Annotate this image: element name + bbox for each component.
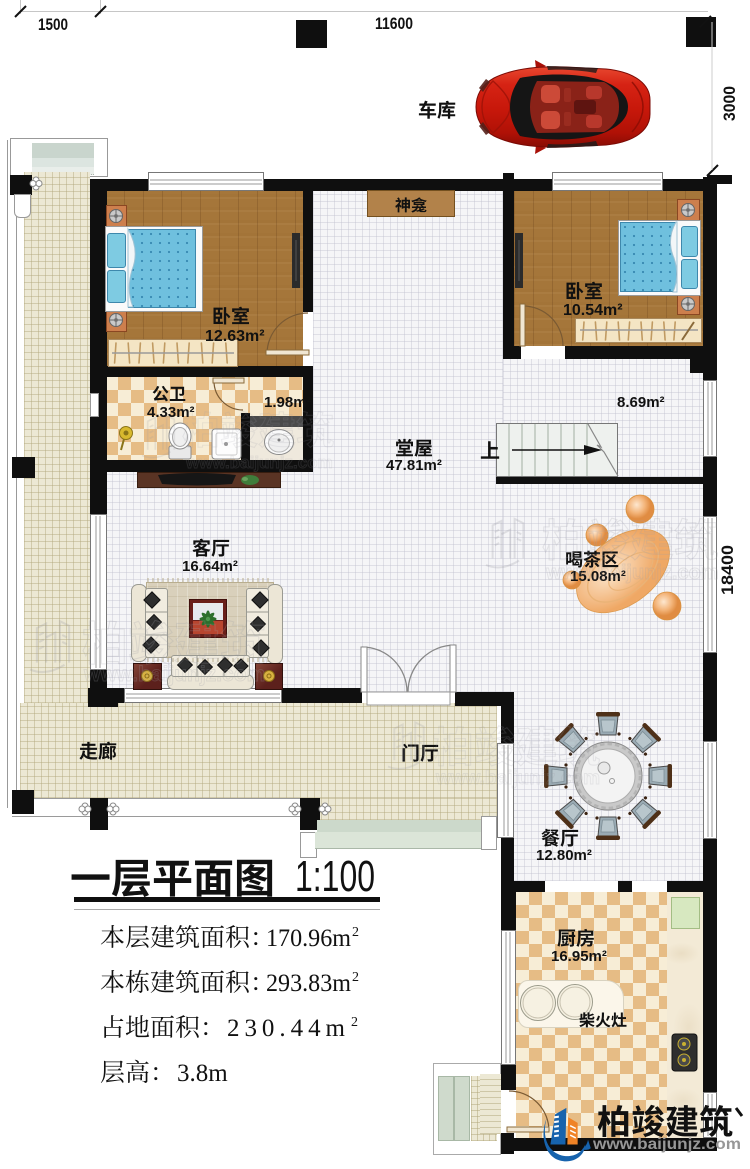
svg-text:www.baijunjz.com: www.baijunjz.com	[185, 453, 333, 472]
svg-text:1500: 1500	[38, 15, 68, 34]
svg-text:2: 2	[352, 925, 359, 940]
svg-text:12.80m²: 12.80m²	[536, 847, 592, 864]
svg-text:1.98m²: 1.98m²	[264, 394, 312, 411]
svg-text:1:100: 1:100	[295, 852, 375, 901]
svg-text:2: 2	[351, 1015, 358, 1030]
svg-text:3000: 3000	[720, 86, 739, 121]
svg-text:2: 2	[352, 970, 359, 985]
svg-text:www.baijunjz.com: www.baijunjz.com	[545, 562, 719, 584]
svg-text:12.63m²: 12.63m²	[205, 328, 265, 345]
svg-text:www.baijunjz.com: www.baijunjz.com	[83, 663, 265, 686]
svg-text:8.69m²: 8.69m²	[617, 394, 665, 411]
svg-text:www.baijunjz.com: www.baijunjz.com	[592, 1136, 741, 1153]
svg-text:11600: 11600	[375, 14, 413, 33]
svg-text:3.8m: 3.8m	[177, 1060, 228, 1087]
svg-text:16.64m²: 16.64m²	[182, 558, 238, 575]
svg-text:16.95m²: 16.95m²	[551, 948, 607, 965]
svg-text:230.44m: 230.44m	[227, 1015, 346, 1042]
svg-text:47.81m²: 47.81m²	[386, 457, 442, 474]
svg-text:293.83m: 293.83m	[266, 970, 352, 997]
svg-text:10.54m²: 10.54m²	[563, 302, 623, 319]
svg-text:18400: 18400	[718, 545, 737, 595]
svg-text:www.baijunjz.com: www.baijunjz.com	[435, 768, 600, 789]
svg-text:170.96m: 170.96m	[266, 925, 352, 952]
